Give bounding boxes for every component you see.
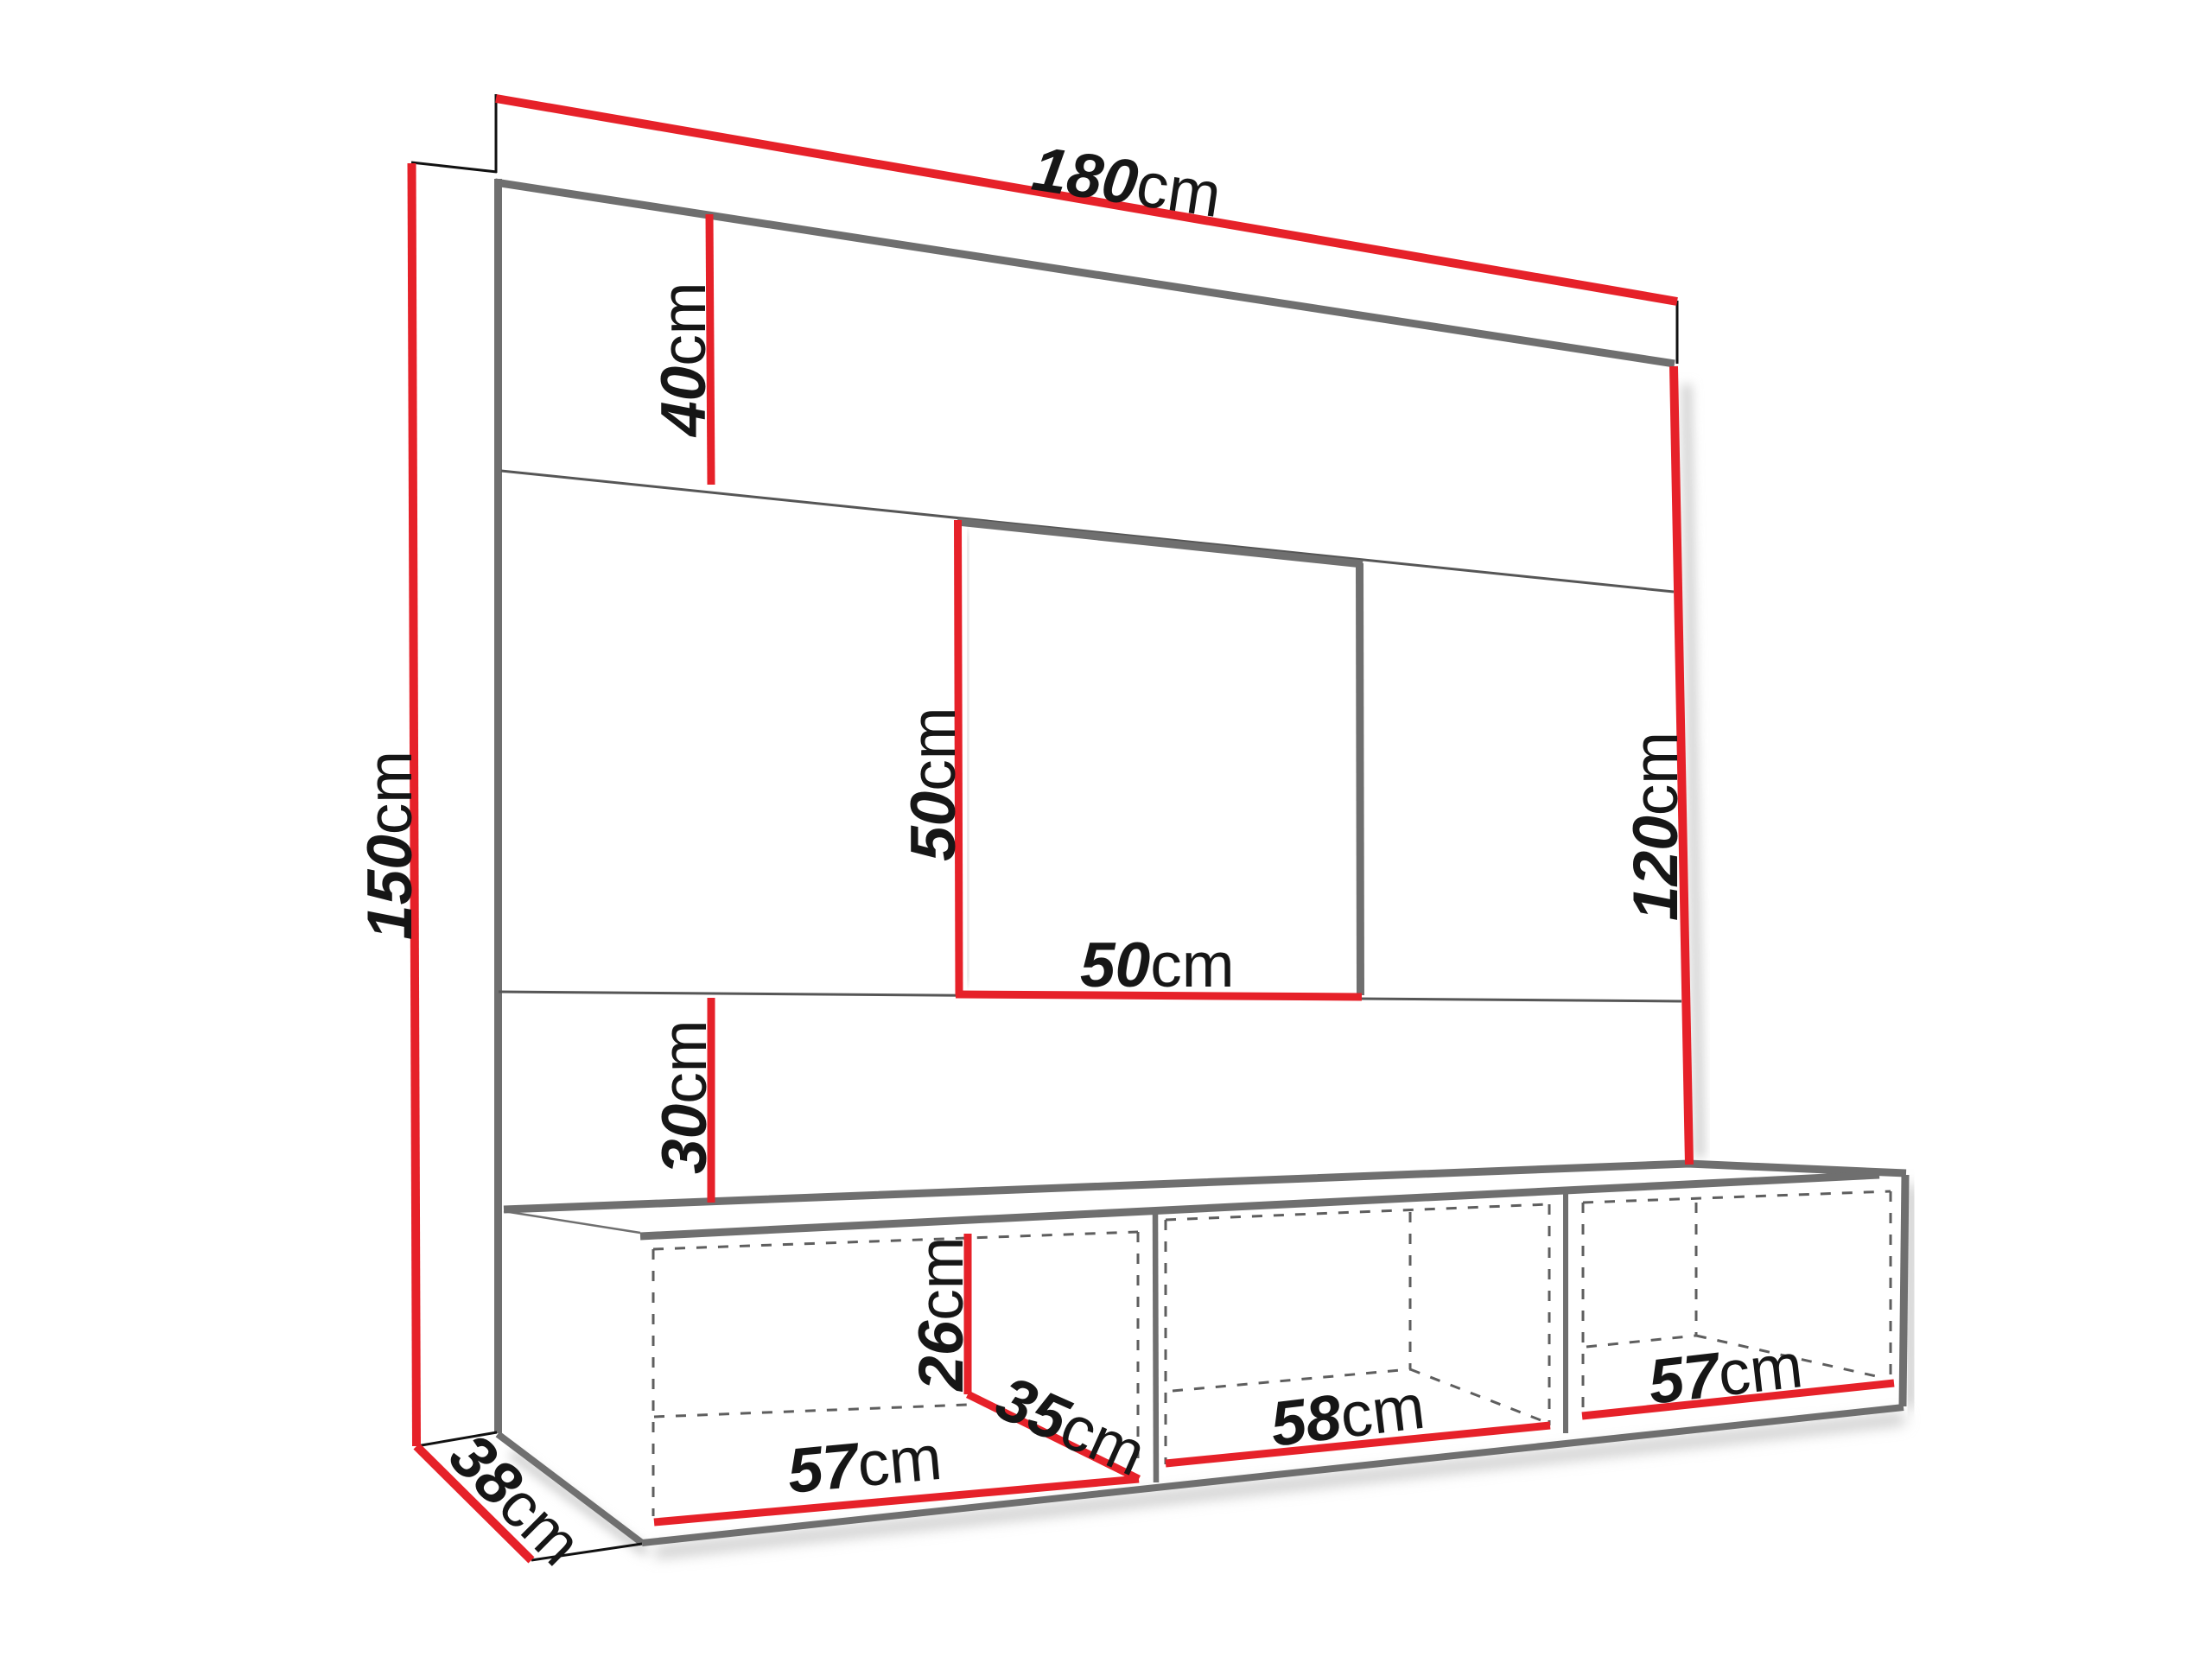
svg-text:120cm: 120cm xyxy=(1621,732,1691,921)
svg-text:50cm: 50cm xyxy=(899,707,969,861)
svg-text:30cm: 30cm xyxy=(650,1019,720,1174)
svg-text:26cm: 26cm xyxy=(906,1236,976,1393)
svg-text:57cm: 57cm xyxy=(785,1423,944,1507)
svg-text:150cm: 150cm xyxy=(355,751,425,940)
svg-text:50cm: 50cm xyxy=(1080,930,1235,1000)
svg-text:40cm: 40cm xyxy=(649,282,719,438)
